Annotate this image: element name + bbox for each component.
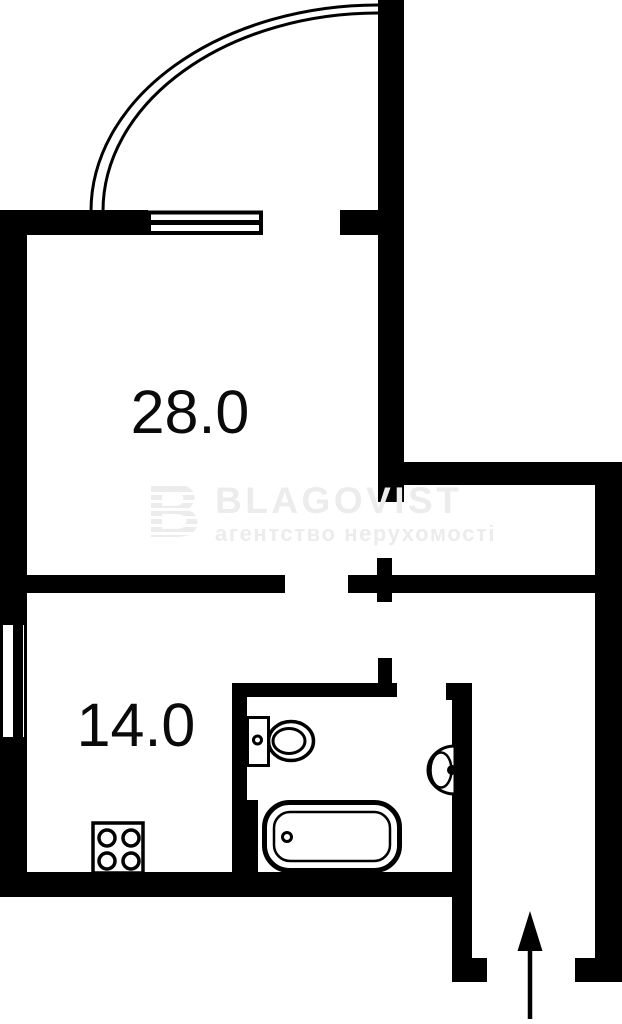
logo-stripe bbox=[150, 524, 202, 527]
wall-bottom bbox=[0, 872, 470, 897]
logo-stripe bbox=[150, 532, 202, 535]
wall-left-upper bbox=[0, 210, 27, 622]
windows bbox=[2, 213, 262, 739]
floor-plan: B BLAGOVIST агентство нерухомості 28.0 1… bbox=[0, 0, 622, 1024]
window-top-icon bbox=[149, 213, 261, 234]
toilet-icon bbox=[248, 718, 314, 766]
room-area-label-living: 28.0 bbox=[131, 377, 250, 447]
wall-mid-left bbox=[27, 575, 285, 593]
entrance-arrow-icon bbox=[518, 911, 543, 1019]
wall-bath-top-stub bbox=[378, 658, 392, 685]
wall-room1-right bbox=[378, 0, 404, 502]
wall-bath-right bbox=[452, 697, 472, 958]
washbasin-icon bbox=[428, 746, 457, 794]
logo-stripe bbox=[150, 516, 202, 519]
logo-stripe bbox=[150, 492, 202, 495]
wall-left-entry-foot bbox=[452, 958, 487, 982]
agency-watermark: B BLAGOVIST агентство нерухомості bbox=[150, 486, 496, 545]
logo-stripe bbox=[150, 500, 202, 503]
entry-door-swing-arc-icon bbox=[91, 5, 378, 211]
wall-corridor-cross-stub bbox=[377, 558, 392, 602]
watermark-text: BLAGOVIST агентство нерухомості bbox=[215, 486, 496, 545]
room-area-label-kitchen: 14.0 bbox=[77, 690, 196, 760]
logo-stripe bbox=[150, 508, 202, 511]
wall-right-entry-foot bbox=[575, 958, 600, 982]
blagovist-logo-icon: B bbox=[150, 486, 202, 542]
wall-top-left bbox=[0, 210, 148, 235]
bathtub-icon bbox=[265, 803, 400, 871]
wall-bath-top bbox=[232, 683, 397, 697]
wall-right-outer bbox=[595, 462, 622, 982]
window-left-icon bbox=[2, 623, 26, 739]
wall-top-stub bbox=[340, 210, 378, 235]
stove-icon bbox=[93, 823, 143, 873]
wall-bath-left bbox=[232, 697, 247, 800]
watermark-tagline: агентство нерухомості bbox=[215, 523, 496, 545]
wall-bath-left-wide bbox=[232, 800, 258, 873]
watermark-brand: BLAGOVIST bbox=[215, 486, 496, 516]
